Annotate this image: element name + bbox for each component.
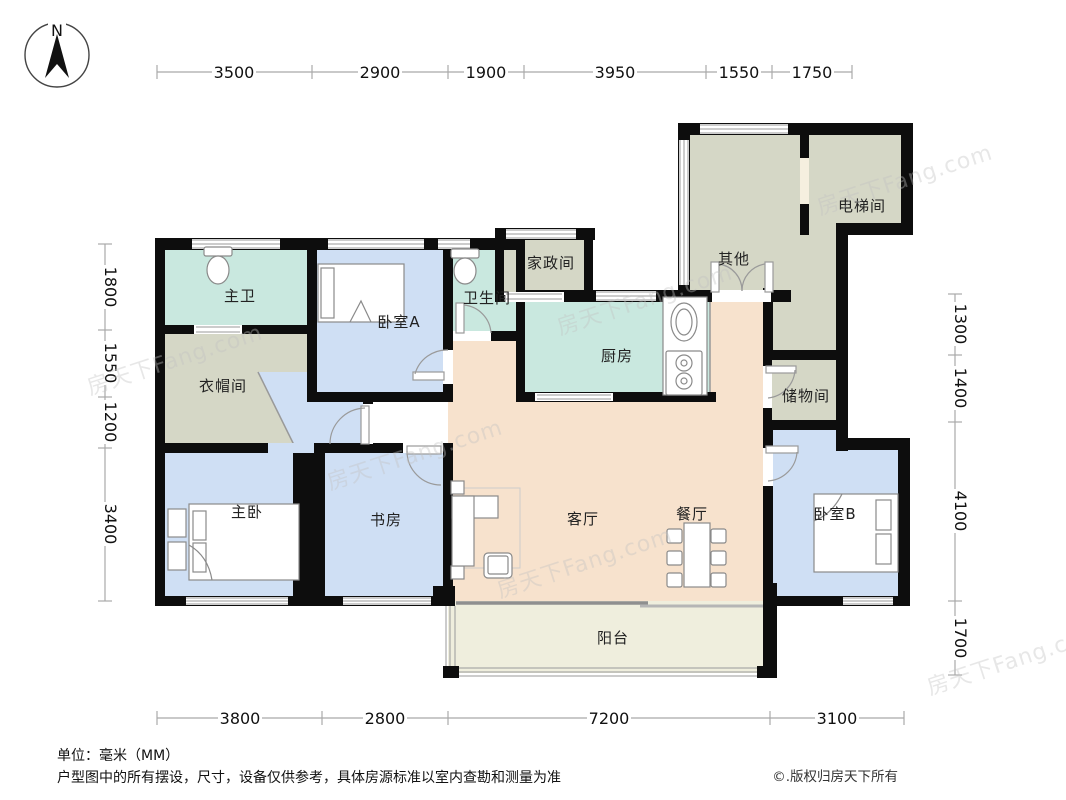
footer-copyright: ©.版权归房天下所有 bbox=[772, 768, 898, 785]
window-bathroom bbox=[438, 239, 470, 249]
dim-top-5: 1550 bbox=[719, 63, 760, 82]
elevator-opening bbox=[800, 158, 809, 204]
kitchen-counter bbox=[663, 297, 707, 395]
window-bedroom-a bbox=[328, 239, 424, 249]
dim-top-6: 1750 bbox=[792, 63, 833, 82]
room-label-storage: 储物间 bbox=[782, 387, 830, 405]
room-label-bedroom-b: 卧室B bbox=[813, 505, 856, 523]
footer-unit-label: 单位：毫米（MM） bbox=[57, 747, 179, 764]
watermark-text: 房天下Fang.com bbox=[924, 620, 1066, 700]
dimension-bottom: 3800 2800 7200 3100 bbox=[157, 709, 904, 728]
dim-right-2: 1400 bbox=[951, 368, 970, 409]
room-label-dining-room: 餐厅 bbox=[676, 505, 708, 523]
room-label-bedroom-a: 卧室A bbox=[377, 313, 420, 331]
window-housekeeping bbox=[506, 229, 576, 239]
dim-right-1: 1300 bbox=[951, 304, 970, 345]
compass-north-label: N bbox=[51, 21, 63, 40]
window-other-left bbox=[679, 140, 689, 285]
dim-bottom-2: 2800 bbox=[365, 709, 406, 728]
dim-bottom-3: 7200 bbox=[589, 709, 630, 728]
room-label-study: 书房 bbox=[370, 511, 402, 529]
room-label-housekeeping: 家政间 bbox=[527, 254, 575, 272]
floor-plan-canvas: 主卫 衣帽间 卧室A 卫生间 家政间 其他 电梯间 厨房 储物间 主卧 书房 客… bbox=[0, 0, 1066, 800]
room-label-balcony: 阳台 bbox=[597, 629, 629, 647]
dim-top-4: 3950 bbox=[595, 63, 636, 82]
dimension-top: 3500 2900 1900 3950 1550 1750 bbox=[157, 63, 852, 82]
door-housekeeping-sliding bbox=[504, 292, 564, 302]
armchair-living-room bbox=[484, 553, 512, 578]
dim-top-1: 3500 bbox=[214, 63, 255, 82]
window-bedroom-b bbox=[843, 597, 893, 605]
dim-top-2: 2900 bbox=[360, 63, 401, 82]
window-other-top bbox=[700, 124, 788, 134]
door-master-bedroom-opening bbox=[268, 443, 314, 453]
room-label-master-bath: 主卫 bbox=[224, 287, 256, 305]
room-label-living-room: 客厅 bbox=[567, 510, 599, 528]
dining-table-set bbox=[667, 523, 726, 587]
dim-left-1: 1800 bbox=[101, 267, 120, 308]
dim-bottom-4: 3100 bbox=[817, 709, 858, 728]
room-label-master-bedroom: 主卧 bbox=[231, 503, 263, 521]
dim-right-3: 4100 bbox=[951, 491, 970, 532]
dim-left-3: 1200 bbox=[101, 402, 120, 443]
window-study bbox=[343, 597, 431, 605]
north-arrow-icon bbox=[45, 34, 69, 78]
window-master-bedroom bbox=[186, 597, 288, 605]
dimension-left: 1800 1550 1200 3400 bbox=[96, 244, 120, 601]
room-label-bathroom: 卫生间 bbox=[463, 289, 511, 307]
dim-bottom-1: 3800 bbox=[220, 709, 261, 728]
room-label-kitchen: 厨房 bbox=[601, 347, 633, 365]
compass: N bbox=[25, 20, 89, 87]
dimension-right: 1300 1400 4100 1700 bbox=[946, 294, 970, 675]
footer: 单位：毫米（MM） 户型图中的所有摆设，尺寸，设备仅供参考，具体房源标准以室内查… bbox=[57, 747, 898, 786]
footer-disclaimer: 户型图中的所有摆设，尺寸，设备仅供参考，具体房源标准以室内查勘和测量为准 bbox=[57, 769, 561, 786]
dim-left-4: 3400 bbox=[101, 504, 120, 545]
kitchen-pass-window bbox=[535, 393, 613, 401]
dim-top-3: 1900 bbox=[466, 63, 507, 82]
dim-right-4: 1700 bbox=[951, 618, 970, 659]
kitchen-stove bbox=[666, 351, 702, 395]
room-label-cloakroom: 衣帽间 bbox=[199, 377, 247, 395]
floor-plan-page: 主卫 衣帽间 卧室A 卫生间 家政间 其他 电梯间 厨房 储物间 主卧 书房 客… bbox=[0, 0, 1066, 800]
